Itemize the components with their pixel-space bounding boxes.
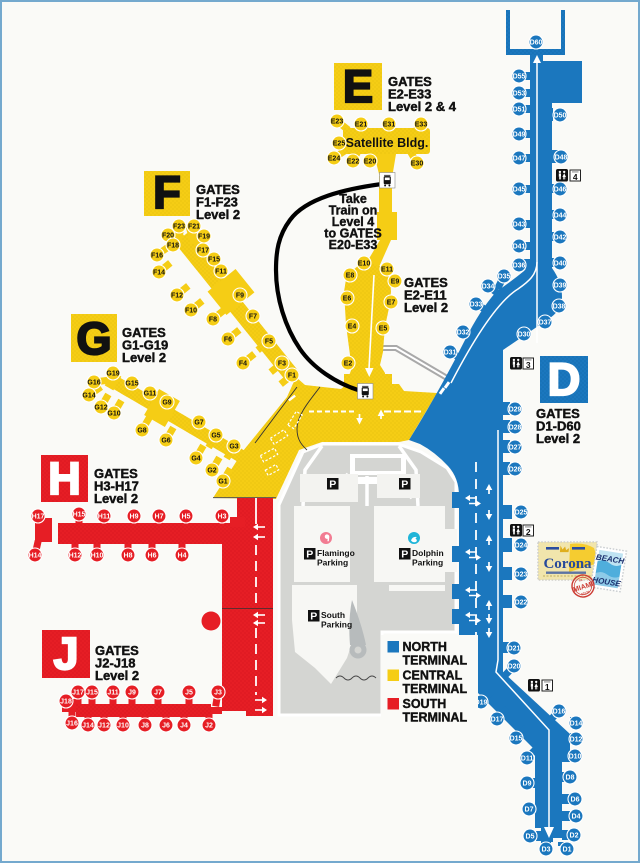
svg-text:H8: H8: [124, 552, 133, 559]
svg-text:F5: F5: [265, 338, 273, 345]
svg-text:D17: D17: [491, 716, 504, 723]
svg-text:Level 2: Level 2: [95, 668, 139, 683]
svg-text:D30: D30: [518, 331, 531, 338]
svg-text:E4: E4: [348, 323, 357, 330]
svg-text:F1: F1: [288, 372, 296, 379]
svg-text:H5: H5: [182, 513, 191, 520]
svg-text:Corona: Corona: [543, 556, 592, 572]
svg-text:D44: D44: [554, 212, 567, 219]
svg-text:Level 2: Level 2: [94, 491, 138, 506]
svg-text:J18: J18: [60, 698, 72, 705]
svg-text:E8: E8: [346, 272, 355, 279]
svg-text:Parking: Parking: [412, 558, 443, 568]
svg-text:F7: F7: [249, 313, 257, 320]
svg-text:1: 1: [545, 682, 550, 692]
svg-text:Level 2: Level 2: [536, 431, 580, 446]
svg-text:Parking: Parking: [317, 558, 348, 568]
svg-text:G6: G6: [161, 437, 170, 444]
svg-text:D26: D26: [509, 466, 522, 473]
svg-text:D35: D35: [498, 273, 511, 280]
svg-text:F21: F21: [188, 223, 200, 230]
svg-text:E33: E33: [415, 121, 428, 128]
svg-text:E11: E11: [381, 266, 393, 273]
svg-text:J17: J17: [72, 689, 84, 696]
svg-text:J5: J5: [185, 689, 193, 696]
svg-text:D3: D3: [542, 846, 551, 853]
svg-text:H: H: [48, 453, 81, 504]
svg-text:D7: D7: [525, 806, 534, 813]
svg-text:D31: D31: [444, 349, 457, 356]
svg-text:F6: F6: [224, 336, 232, 343]
svg-text:D45: D45: [513, 186, 526, 193]
svg-text:G14: G14: [82, 392, 95, 399]
svg-text:J6: J6: [162, 722, 170, 729]
svg-text:Level 2 & 4: Level 2 & 4: [388, 99, 457, 114]
svg-text:E6: E6: [343, 295, 352, 302]
svg-text:G2: G2: [207, 467, 216, 474]
svg-text:CENTRAL: CENTRAL: [403, 669, 463, 683]
svg-text:TERMINAL: TERMINAL: [403, 682, 468, 696]
svg-text:SOUTH: SOUTH: [403, 697, 447, 711]
svg-text:E9: E9: [391, 278, 400, 285]
svg-text:G12: G12: [94, 404, 107, 411]
svg-text:D48: D48: [555, 154, 568, 161]
svg-text:Level 2: Level 2: [196, 207, 240, 222]
svg-text:J11: J11: [107, 689, 118, 696]
svg-text:F4: F4: [239, 360, 247, 367]
svg-text:G4: G4: [191, 455, 200, 462]
svg-text:D24: D24: [515, 542, 528, 549]
svg-text:J3: J3: [214, 689, 222, 696]
svg-text:E: E: [343, 61, 373, 112]
svg-text:D34: D34: [482, 283, 495, 290]
svg-text:D40: D40: [554, 260, 567, 267]
svg-text:D11: D11: [521, 755, 534, 762]
svg-text:NORTH: NORTH: [403, 640, 447, 654]
svg-text:D60: D60: [530, 39, 543, 46]
svg-text:Level 2: Level 2: [404, 300, 448, 315]
svg-text:F3: F3: [278, 360, 286, 367]
svg-text:TERMINAL: TERMINAL: [403, 654, 468, 668]
svg-text:D5: D5: [526, 833, 535, 840]
svg-text:G19: G19: [106, 370, 119, 377]
svg-text:F9: F9: [236, 292, 244, 299]
svg-text:D15: D15: [510, 735, 523, 742]
svg-text:D12: D12: [570, 736, 583, 743]
svg-text:F12: F12: [171, 292, 183, 299]
svg-text:TERMINAL: TERMINAL: [403, 711, 468, 725]
svg-text:Parking: Parking: [321, 620, 352, 630]
svg-text:D: D: [548, 354, 581, 405]
svg-text:D2: D2: [570, 832, 579, 839]
svg-text:G1: G1: [218, 478, 227, 485]
svg-text:J4: J4: [180, 722, 188, 729]
svg-text:G8: G8: [137, 427, 146, 434]
svg-text:E21: E21: [355, 121, 368, 128]
svg-text:F19: F19: [198, 233, 210, 240]
svg-text:F16: F16: [151, 252, 163, 259]
svg-text:F23: F23: [173, 223, 185, 230]
svg-text:D41: D41: [513, 243, 526, 250]
svg-text:D53: D53: [513, 90, 526, 97]
svg-text:E30: E30: [411, 160, 424, 167]
svg-text:H9: H9: [130, 513, 139, 520]
svg-text:E31: E31: [383, 121, 396, 128]
svg-text:E25: E25: [333, 140, 346, 147]
svg-text:F17: F17: [197, 247, 209, 254]
svg-text:D49: D49: [513, 131, 526, 138]
svg-text:H4: H4: [178, 552, 187, 559]
svg-text:F18: F18: [167, 242, 179, 249]
svg-text:D6: D6: [571, 796, 580, 803]
svg-text:D10: D10: [569, 753, 582, 760]
svg-text:F11: F11: [215, 268, 227, 275]
svg-text:J16: J16: [66, 720, 78, 727]
svg-text:J12: J12: [98, 722, 110, 729]
svg-text:Level 2: Level 2: [122, 350, 166, 365]
svg-text:F8: F8: [209, 316, 217, 323]
svg-text:H14: H14: [29, 552, 42, 559]
svg-text:D51: D51: [513, 106, 526, 113]
svg-text:D23: D23: [515, 571, 528, 578]
svg-text:H15: H15: [73, 511, 86, 518]
svg-text:D25: D25: [515, 509, 528, 516]
svg-text:D43: D43: [513, 221, 526, 228]
svg-text:J10: J10: [117, 722, 129, 729]
svg-text:F: F: [153, 167, 181, 218]
svg-text:G15: G15: [125, 380, 138, 387]
svg-text:E24: E24: [328, 155, 341, 162]
svg-text:3: 3: [526, 360, 531, 370]
svg-text:D28: D28: [509, 424, 522, 431]
svg-text:G7: G7: [194, 419, 203, 426]
svg-text:D4: D4: [572, 813, 581, 820]
svg-text:E23: E23: [331, 118, 344, 125]
svg-text:H17: H17: [32, 513, 45, 520]
svg-text:J2: J2: [205, 722, 213, 729]
svg-text:D21: D21: [508, 645, 521, 652]
svg-text:E2: E2: [344, 360, 353, 367]
svg-text:D22: D22: [515, 599, 528, 606]
svg-text:J7: J7: [154, 689, 162, 696]
svg-text:H3: H3: [218, 513, 227, 520]
svg-text:G11: G11: [144, 390, 157, 397]
svg-text:D14: D14: [570, 720, 583, 727]
svg-text:E20-E33: E20-E33: [329, 238, 378, 252]
svg-text:D20: D20: [508, 663, 521, 670]
svg-text:F10: F10: [185, 307, 197, 314]
svg-text:H6: H6: [148, 552, 157, 559]
svg-text:J15: J15: [86, 689, 98, 696]
svg-text:E7: E7: [387, 299, 396, 306]
svg-text:4: 4: [573, 172, 578, 182]
svg-text:D38: D38: [553, 303, 566, 310]
svg-text:Satellite Bldg.: Satellite Bldg.: [346, 136, 429, 150]
svg-text:D39: D39: [554, 282, 567, 289]
svg-text:Dolphin: Dolphin: [412, 548, 444, 558]
svg-text:G3: G3: [229, 443, 238, 450]
svg-text:D32: D32: [457, 329, 470, 336]
svg-text:H11: H11: [98, 513, 111, 520]
svg-text:G16: G16: [87, 379, 100, 386]
svg-text:J14: J14: [82, 722, 94, 729]
svg-text:E5: E5: [379, 325, 388, 332]
svg-text:H7: H7: [155, 513, 164, 520]
svg-text:D36: D36: [513, 262, 526, 269]
svg-text:South: South: [321, 610, 345, 620]
svg-text:D29: D29: [509, 406, 522, 413]
svg-text:G: G: [76, 313, 111, 364]
svg-text:D27: D27: [509, 444, 522, 451]
svg-text:D1: D1: [563, 846, 572, 853]
svg-text:H10: H10: [91, 552, 104, 559]
svg-text:E22: E22: [347, 158, 360, 165]
svg-text:D50: D50: [554, 112, 567, 119]
svg-text:Flamingo: Flamingo: [317, 548, 355, 558]
svg-text:E10: E10: [358, 260, 371, 267]
svg-text:D46: D46: [554, 186, 567, 193]
svg-text:D47: D47: [513, 155, 526, 162]
svg-text:J9: J9: [128, 689, 136, 696]
svg-text:2: 2: [526, 527, 531, 537]
svg-text:D33: D33: [470, 301, 483, 308]
svg-text:D55: D55: [513, 73, 526, 80]
svg-text:D8: D8: [566, 774, 575, 781]
svg-text:J: J: [53, 628, 78, 679]
svg-text:D42: D42: [554, 234, 567, 241]
svg-text:F14: F14: [153, 269, 165, 276]
svg-text:J8: J8: [141, 722, 149, 729]
svg-text:D16: D16: [553, 708, 566, 715]
svg-text:G5: G5: [211, 432, 220, 439]
svg-text:D9: D9: [523, 780, 532, 787]
svg-text:H12: H12: [69, 552, 82, 559]
svg-text:D37: D37: [539, 319, 552, 326]
svg-text:F15: F15: [208, 256, 220, 263]
svg-text:G10: G10: [107, 410, 120, 417]
svg-text:G9: G9: [162, 399, 171, 406]
svg-text:E20: E20: [364, 158, 377, 165]
